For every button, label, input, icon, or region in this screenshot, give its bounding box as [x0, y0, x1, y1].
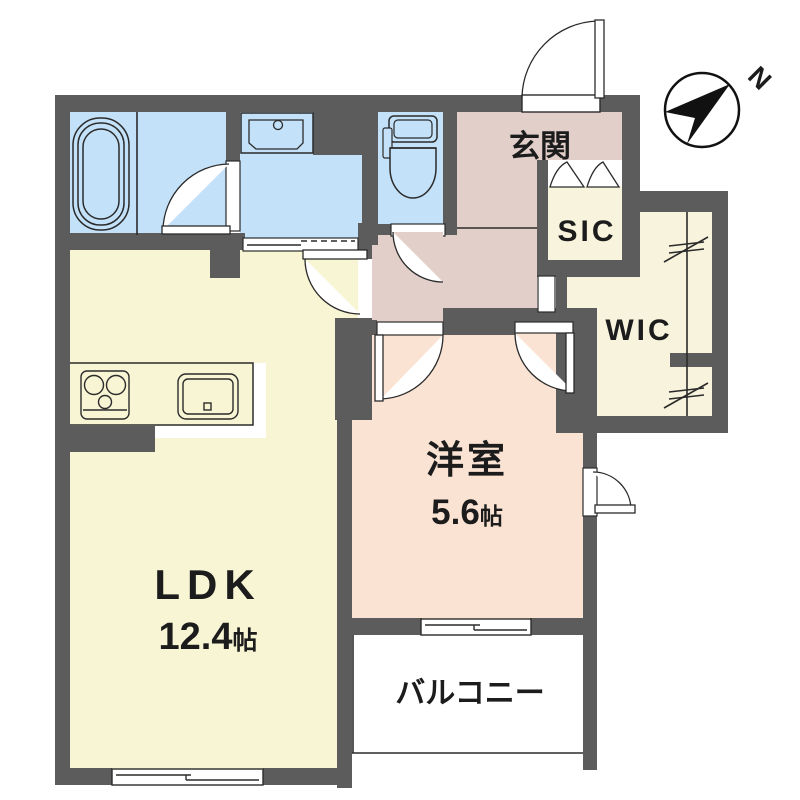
wall-washroom-east	[226, 110, 240, 165]
sic-label: SIC	[557, 215, 616, 248]
compass-north-label: N	[742, 61, 777, 96]
pipe-space-box	[538, 276, 555, 312]
bedroom-side-door-leaf	[595, 505, 635, 513]
bedroom-side-door-arc	[593, 472, 631, 510]
wall-ps-east	[556, 276, 567, 312]
stove-burner-small	[99, 396, 112, 409]
toilet-tank-lid	[394, 120, 432, 138]
wall-bedroom-bottom-right	[530, 618, 583, 635]
bedroom-door-east-leaf	[566, 333, 574, 393]
bathtub-inner	[83, 129, 119, 219]
floor-plan-page: N 玄関 SIC WIC 洋室 5.6帖 LDK 12.4帖 バルコニー	[0, 0, 800, 800]
sanitary-sliding-door	[243, 238, 358, 251]
stove-burner-left	[85, 376, 104, 395]
stove-burner-right	[107, 376, 126, 395]
ldk-label: LDK	[154, 561, 261, 608]
toilet-bowl	[390, 148, 436, 198]
bedroom-west-door-opening	[377, 322, 443, 335]
bedroom-east-door-opening	[515, 322, 573, 333]
wall-wic-stub	[670, 353, 712, 367]
ldk-door-leaf	[303, 250, 367, 259]
wall-toilet-east	[443, 110, 457, 235]
wall-bedroom-bottom-left	[352, 618, 422, 635]
entrance-door	[522, 20, 604, 98]
bedroom-size-unit: 帖	[480, 503, 503, 529]
wall-bedroom-east-lower	[583, 516, 597, 770]
wic-label: WIC	[605, 314, 672, 347]
wall-stub-washroom	[210, 250, 240, 278]
floor-plan-drawing: N 玄関 SIC WIC 洋室 5.6帖 LDK 12.4帖 バルコニー	[0, 0, 800, 800]
sink-drain	[204, 403, 211, 410]
entrance-label: 玄関	[509, 129, 571, 164]
wall-wic-bottom	[583, 416, 728, 433]
bedroom-window-frame	[421, 619, 531, 635]
wall-bedroom-east-upper	[583, 333, 597, 470]
wall-bedroom-jamb-west	[370, 320, 377, 335]
bedroom-size-value: 5.6	[431, 493, 480, 532]
wall-kitchen-stub	[70, 426, 155, 452]
entrance-door-leaf	[595, 20, 604, 98]
wall-left	[55, 95, 70, 785]
wall-top-right	[600, 95, 640, 112]
ldk-floor	[70, 248, 358, 772]
wall-top-left	[55, 95, 522, 112]
bedroom-door-west-leaf	[375, 335, 383, 401]
ldk-size-value: 12.4	[159, 616, 233, 658]
bedroom-side-door	[593, 472, 635, 513]
compass: N	[665, 61, 777, 147]
ldk-window-frame	[112, 769, 263, 785]
kitchen-sink	[178, 374, 238, 419]
wall-bottom-a	[55, 768, 112, 785]
entrance-door-arc	[522, 21, 597, 97]
bedroom-window	[421, 619, 531, 635]
wall-hall-ldk-mid	[335, 318, 372, 420]
washroom-door-opening	[226, 161, 240, 231]
wall-ldk-east	[337, 420, 352, 788]
wall-wic-east	[712, 191, 728, 433]
wall-sic-west	[537, 160, 548, 267]
wall-bath-bottom	[55, 233, 245, 250]
washbasin	[241, 113, 313, 153]
wall-bedroom-top-mid	[443, 308, 515, 335]
entrance-door-sill	[522, 95, 600, 112]
bedroom-label: 洋室	[426, 439, 508, 482]
balcony-label: バルコニー	[395, 677, 544, 710]
ldk-window	[112, 769, 263, 785]
wall-basin-chunk	[313, 110, 362, 155]
stove	[81, 371, 129, 419]
bathtub	[73, 118, 129, 230]
washroom-door-leaf	[162, 226, 230, 234]
ldk-size-unit: 帖	[232, 627, 257, 655]
washbasin-faucet	[274, 121, 283, 130]
